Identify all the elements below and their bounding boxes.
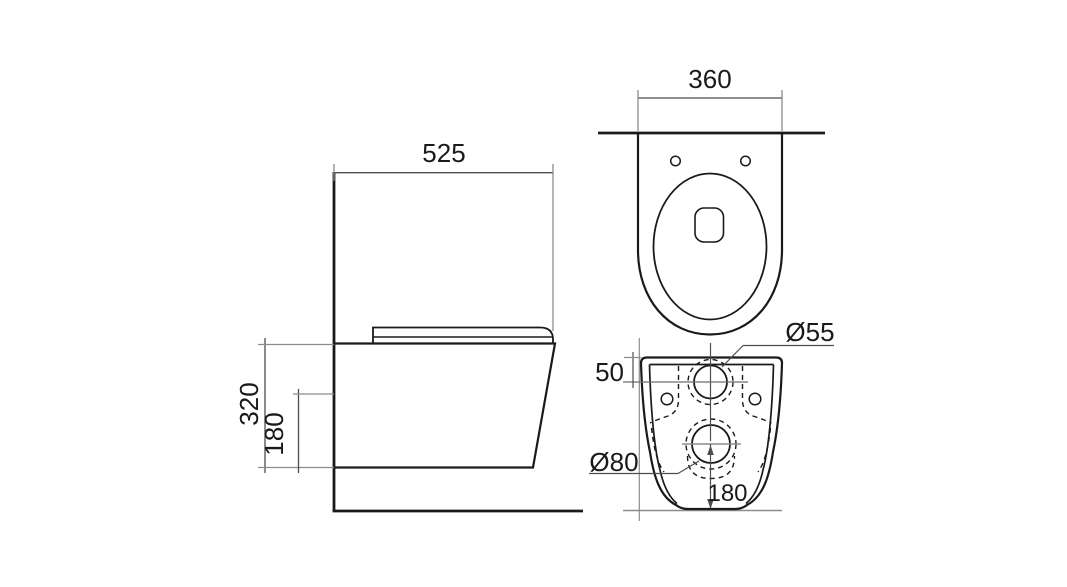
dim-360-label: 360 xyxy=(688,64,731,94)
dim-525-label: 525 xyxy=(422,138,465,168)
rear-flush-channel-right xyxy=(743,366,772,423)
technical-drawing-canvas: 525 320 180 360 xyxy=(0,0,1067,587)
label-outlet-diameter: Ø80 xyxy=(589,447,638,477)
toilet-dimension-drawing: 525 320 180 360 xyxy=(0,0,1067,587)
dim-rear-180-label: 180 xyxy=(707,480,747,507)
leader-outlet-slant xyxy=(678,461,699,474)
top-bowl-rim xyxy=(654,174,767,320)
side-seat-outline xyxy=(373,328,553,344)
rear-inner-left-line xyxy=(650,365,678,504)
dim-50-label: 50 xyxy=(595,357,624,387)
top-flush-opening xyxy=(695,208,724,242)
rear-view: 50 180 Ø55 Ø80 xyxy=(589,317,835,511)
dim-side-180-label: 180 xyxy=(259,412,289,455)
side-view: 525 320 180 xyxy=(234,138,583,511)
top-mount-hole-left xyxy=(671,156,681,166)
rear-fixing-hole-right xyxy=(749,393,761,405)
rear-inner-right-line xyxy=(746,365,774,504)
top-mount-hole-right xyxy=(741,156,751,166)
side-body-outline xyxy=(334,344,555,468)
rear-fixing-hole-left xyxy=(661,393,673,405)
dim-rear-180-arrow-up xyxy=(707,445,714,455)
top-body-outline xyxy=(638,133,782,335)
label-inlet-diameter: Ø55 xyxy=(785,317,834,347)
